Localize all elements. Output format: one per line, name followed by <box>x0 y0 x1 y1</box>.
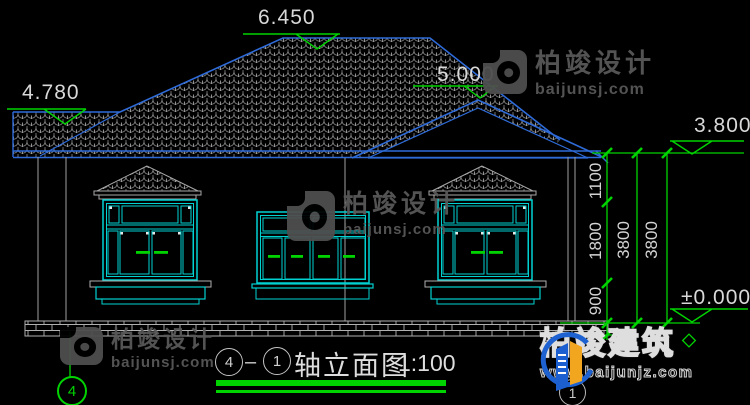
dim-1800: 1800 <box>586 222 606 260</box>
left-bay-window <box>90 166 211 304</box>
level-eave: 3.800 <box>694 114 750 138</box>
casement-swing-tick <box>136 251 150 254</box>
watermark-logo-icon <box>483 50 527 94</box>
bay-sill <box>90 281 211 287</box>
title-underline-thin <box>216 390 446 393</box>
watermark-logo-icon <box>287 191 335 241</box>
watermark-site: baijunsj.com <box>111 354 215 371</box>
dim-3800-outer: 3800 <box>642 221 662 259</box>
cad-elevation-screenshot: 6.450 4.780 5.000 3.800 ±0.000 1100 1800… <box>0 0 750 405</box>
watermark-bottom-left: 柏竣设计 baijunsj.com <box>60 327 215 371</box>
watermark-site: baijunsj.com <box>343 221 459 238</box>
title-dash: – <box>245 351 256 374</box>
watermark-name: 柏竣设计 <box>343 191 459 217</box>
drawing-title: 轴立面图 <box>294 344 410 383</box>
level-left-roof: 4.780 <box>22 81 80 105</box>
axis-bubble-4: 4 <box>57 376 87 405</box>
drawing-scale: 1:100 <box>398 350 456 377</box>
bay-pediment <box>97 166 198 191</box>
watermark-name: 柏竣设计 <box>111 327 215 351</box>
brand-logo: 柏竣建筑 www.baijunjz.com <box>538 328 750 405</box>
dim-1100: 1100 <box>586 163 606 200</box>
watermark-name: 柏竣设计 <box>535 50 655 77</box>
casement-swing-tick <box>154 251 168 254</box>
level-ground: ±0.000 <box>681 286 750 310</box>
title-axis-to: 1 <box>263 347 291 375</box>
watermark-top-right: 柏竣设计 baijunsj.com <box>483 50 655 99</box>
dim-900: 900 <box>586 287 606 315</box>
watermark-center: 柏竣设计 baijunsj.com <box>287 191 459 241</box>
title-axis-from: 4 <box>215 348 243 376</box>
watermark-site: baijunsj.com <box>535 81 655 99</box>
level-ridge: 6.450 <box>258 6 316 30</box>
watermark-logo-icon <box>60 327 103 365</box>
brand-logo-icon <box>538 328 594 402</box>
title-underline-thick <box>216 380 446 386</box>
dim-3800-inner: 3800 <box>614 221 634 259</box>
